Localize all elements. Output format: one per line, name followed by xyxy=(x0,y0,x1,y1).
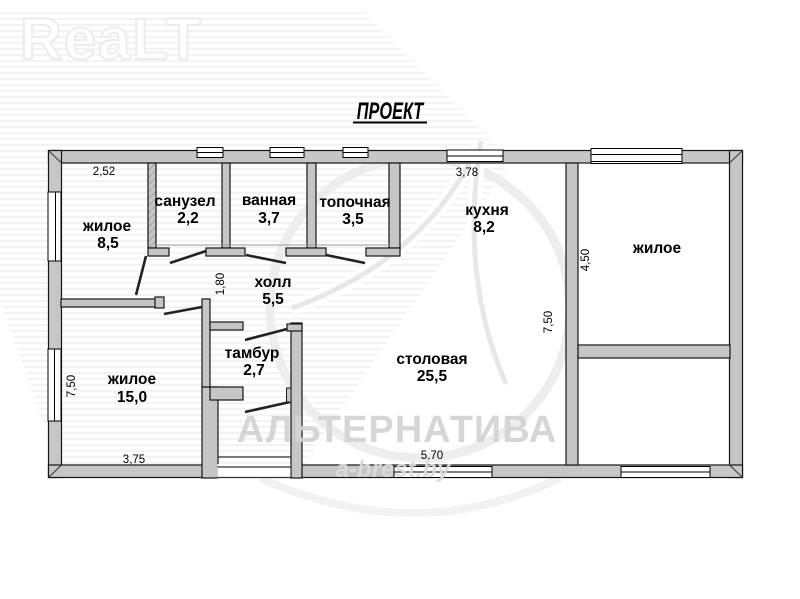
svg-text:8,5: 8,5 xyxy=(97,235,119,252)
svg-text:a-brest.by: a-brest.by xyxy=(336,456,452,483)
svg-text:4,50: 4,50 xyxy=(580,249,592,271)
svg-text:АЛЬТЕРНАТИВА: АЛЬТЕРНАТИВА xyxy=(237,409,557,451)
svg-text:2,2: 2,2 xyxy=(177,210,199,227)
svg-text:3,5: 3,5 xyxy=(342,211,364,228)
svg-text:жилое: жилое xyxy=(82,218,132,235)
svg-text:ванная: ванная xyxy=(242,192,296,209)
svg-text:8,2: 8,2 xyxy=(473,219,495,236)
svg-text:3,7: 3,7 xyxy=(258,210,280,227)
svg-text:тамбур: тамбур xyxy=(225,345,280,362)
svg-text:жилое: жилое xyxy=(632,240,682,257)
svg-text:25,5: 25,5 xyxy=(417,368,448,385)
svg-text:санузел: санузел xyxy=(154,193,215,210)
svg-text:15,0: 15,0 xyxy=(117,389,147,406)
svg-text:3,78: 3,78 xyxy=(456,167,478,179)
svg-text:2,52: 2,52 xyxy=(93,166,115,178)
svg-text:жилое: жилое xyxy=(107,371,157,388)
svg-text:холл: холл xyxy=(254,274,291,291)
svg-text:7,50: 7,50 xyxy=(66,375,78,397)
svg-text:2,7: 2,7 xyxy=(243,362,265,379)
svg-text:7,50: 7,50 xyxy=(543,311,555,333)
svg-text:ReaLT: ReaLT xyxy=(20,7,203,72)
svg-text:столовая: столовая xyxy=(396,351,467,368)
svg-text:ПРОЕКТ: ПРОЕКТ xyxy=(357,98,425,125)
svg-text:1,80: 1,80 xyxy=(215,273,227,295)
svg-text:топочная: топочная xyxy=(319,194,390,211)
svg-text:3,75: 3,75 xyxy=(123,454,145,466)
svg-text:кухня: кухня xyxy=(465,202,509,219)
svg-text:5,5: 5,5 xyxy=(262,291,284,308)
